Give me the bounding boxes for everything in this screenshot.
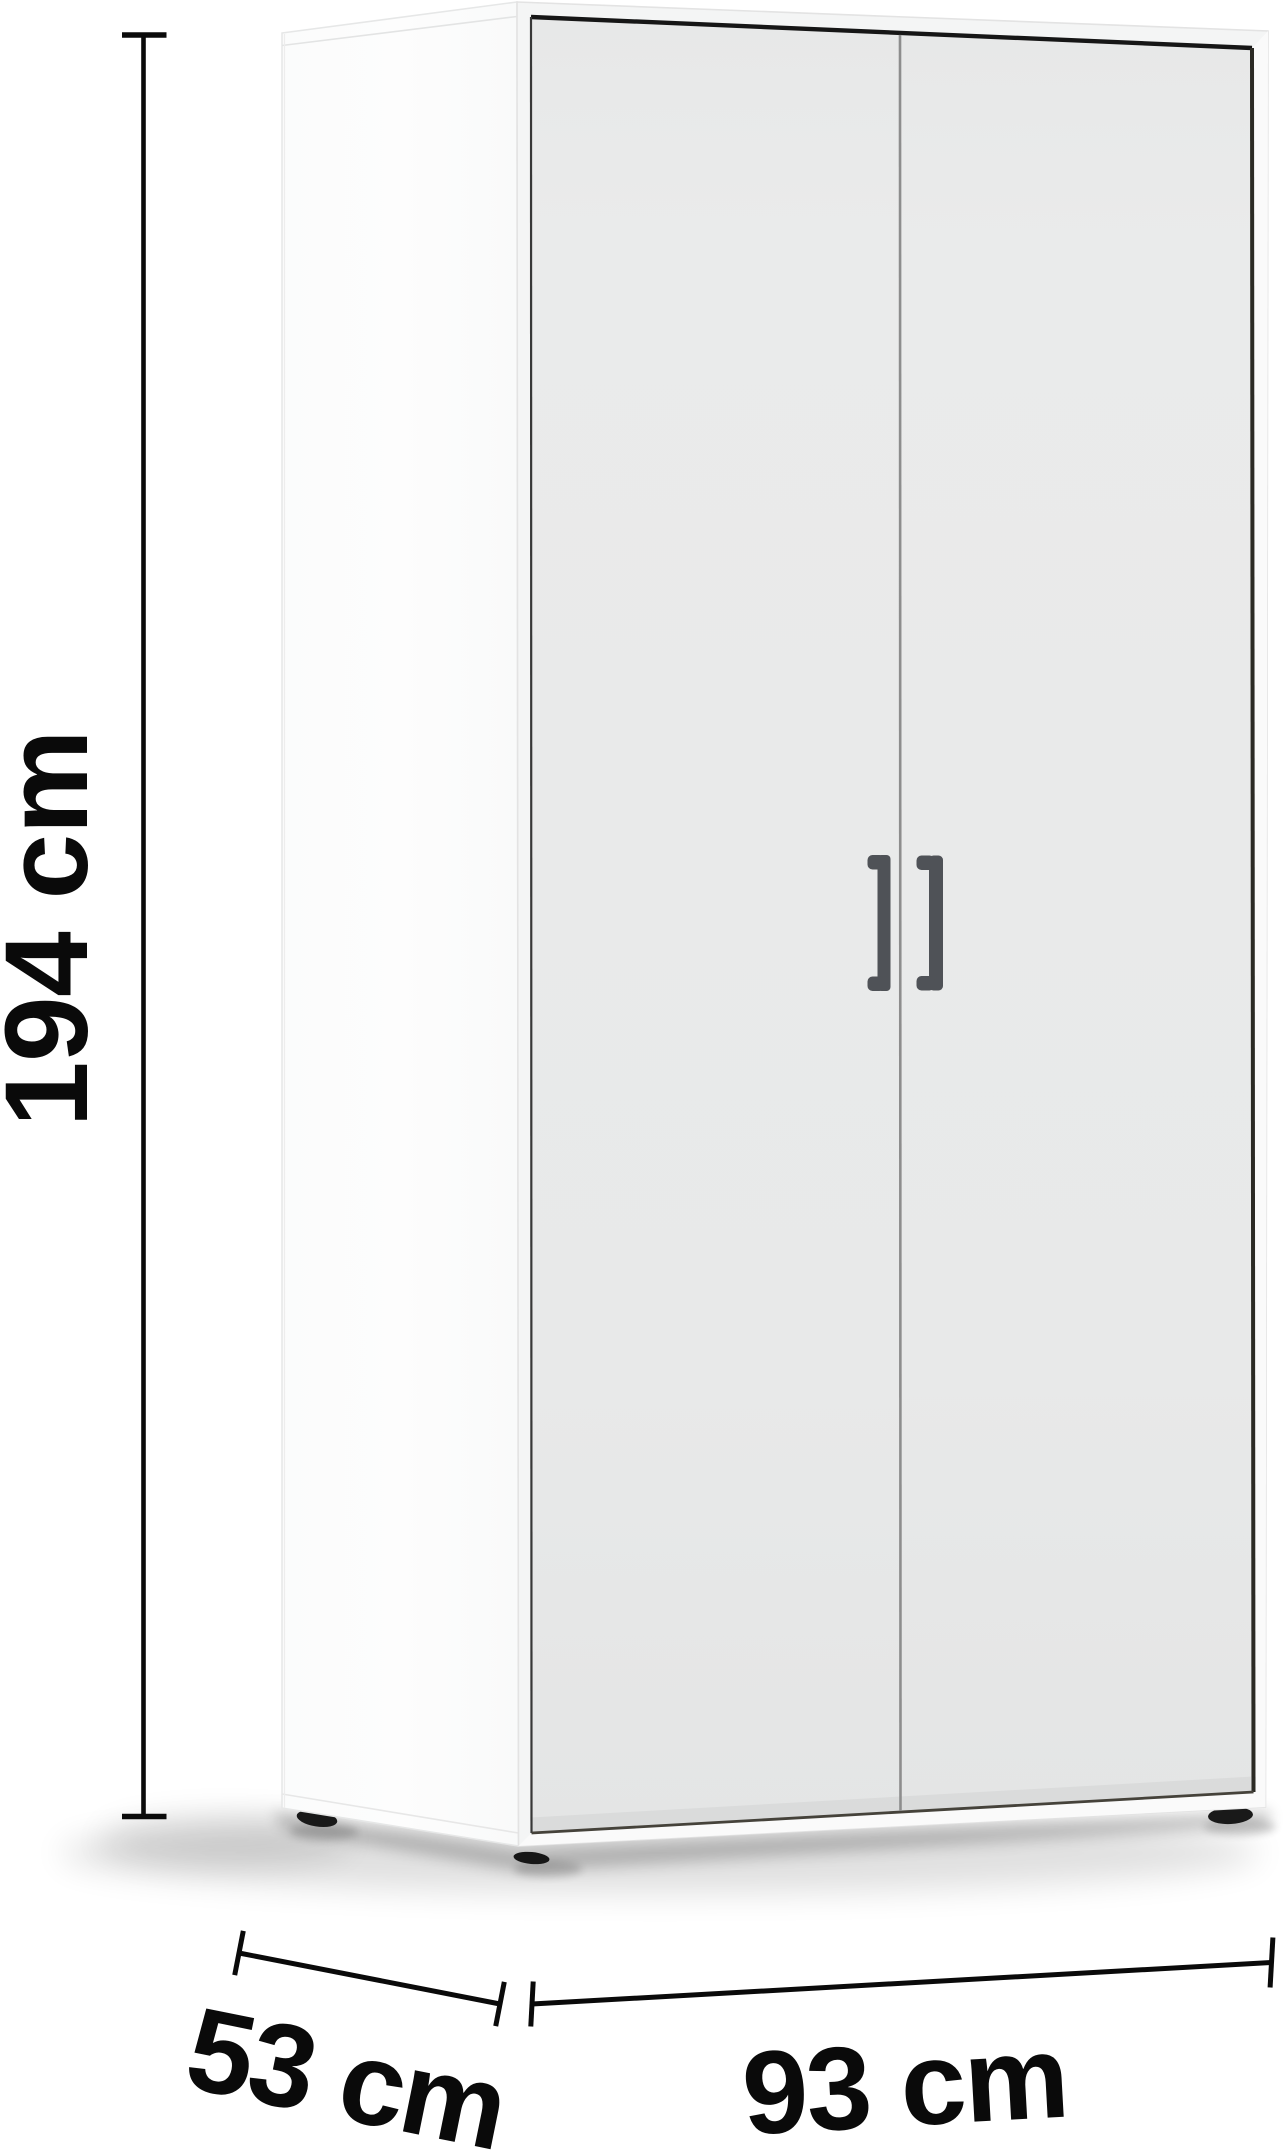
svg-text:93 cm: 93 cm	[739, 2011, 1070, 2152]
svg-text:194 cm: 194 cm	[0, 730, 113, 1127]
